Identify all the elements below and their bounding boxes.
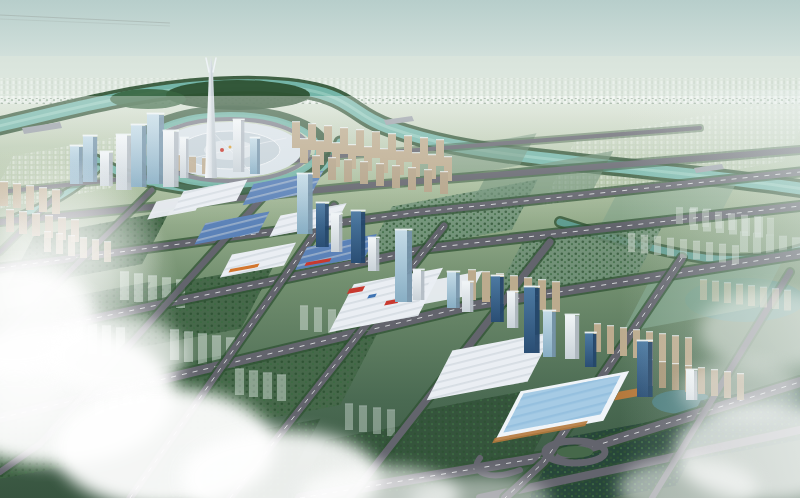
ghost-towers (263, 373, 272, 399)
tower-roof (368, 237, 380, 239)
tower-side (575, 316, 579, 359)
ghost-towers (300, 306, 308, 330)
tower (585, 333, 593, 367)
ghost-towers-roof (314, 307, 322, 308)
tower (565, 315, 575, 359)
ghost-towers-roof (300, 305, 308, 306)
ghost-towers (314, 308, 322, 332)
tower (543, 311, 552, 357)
tower-roof (462, 281, 474, 283)
ghost-towers-roof (373, 407, 381, 408)
ghost-towers-roof (212, 335, 221, 336)
residential-row-roof (496, 273, 504, 274)
tower-side (470, 283, 473, 312)
tower-side (407, 231, 412, 302)
tower-side (456, 273, 460, 308)
tower (524, 287, 535, 353)
tower (447, 272, 456, 308)
ghost-towers-roof (198, 333, 207, 334)
ghost-towers-roof (345, 403, 353, 404)
residential-row-roof (607, 325, 614, 326)
tower (413, 270, 421, 300)
tower (462, 282, 470, 312)
tower-side (593, 334, 596, 367)
residential-row (607, 326, 614, 354)
residential-row-roof (552, 281, 560, 282)
tower-roof (507, 291, 519, 293)
ghost-towers (198, 334, 207, 364)
residential-row-roof (510, 275, 518, 276)
tower-side (376, 239, 379, 271)
ghost-towers-roof (249, 370, 258, 371)
tower-roof (565, 314, 580, 316)
ghost-towers (359, 406, 367, 432)
ghost-towers-roof (387, 409, 395, 410)
scene-root (0, 0, 800, 498)
ghost-towers (249, 371, 258, 397)
ghost-towers (184, 332, 193, 362)
tower-side (500, 277, 504, 322)
residential-row (552, 282, 560, 312)
residential-row-roof (594, 323, 601, 324)
ghost-towers-roof (328, 309, 336, 310)
ghost-towers (235, 369, 244, 395)
tower-roof (585, 332, 597, 334)
ghost-towers-roof (263, 372, 272, 373)
tower (395, 230, 407, 302)
tower-roof (524, 286, 540, 288)
cloud (45, 315, 185, 395)
ghost-towers-roof (359, 405, 367, 406)
tower-side (552, 312, 556, 357)
tower-roof (447, 271, 461, 273)
city-masterplan-rendering (0, 0, 800, 498)
ghost-towers-roof (226, 337, 235, 338)
roundabout-green (557, 446, 593, 458)
tower (507, 292, 515, 328)
residential-row-roof (482, 271, 490, 272)
residential-row (482, 272, 490, 302)
tower (368, 238, 376, 271)
residential-row-roof (538, 279, 546, 280)
tower-roof (491, 275, 505, 277)
tower-side (515, 293, 518, 328)
tower-roof (413, 269, 425, 271)
tower-roof (543, 310, 557, 312)
residential-row-roof (524, 277, 532, 278)
ghost-towers-roof (277, 374, 286, 375)
tower-side (421, 271, 424, 300)
ghost-towers (277, 375, 286, 401)
tower-roof (395, 229, 413, 231)
ghost-towers (387, 410, 395, 436)
cloud (680, 360, 800, 420)
ghost-towers (373, 408, 381, 434)
ghost-towers (345, 404, 353, 430)
ghost-towers-roof (184, 331, 193, 332)
tower (491, 276, 500, 322)
residential-row-roof (468, 269, 476, 270)
tower-side (535, 288, 540, 353)
aerial-rendering-canvas (0, 0, 800, 498)
